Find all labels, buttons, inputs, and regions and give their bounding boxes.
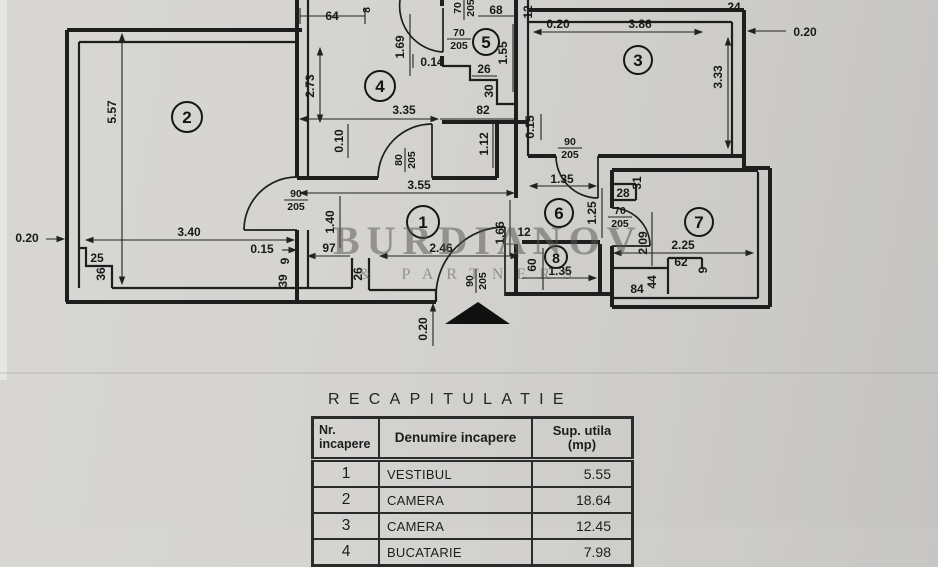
door-width: 90 <box>564 136 576 148</box>
dim-label: 0.14 <box>420 55 444 69</box>
dim-label: 0.15 <box>523 115 537 139</box>
dim-label: 1.40 <box>323 210 337 234</box>
dim-label: 2.09 <box>636 231 650 255</box>
dim-label: 26 <box>351 267 365 281</box>
dim-label: 82 <box>476 103 490 117</box>
dim-label: 44 <box>645 275 659 289</box>
door-size-label: 90 205 <box>558 136 582 161</box>
dim-label: 2.46 <box>429 241 453 255</box>
door-size-label: 70 205 <box>608 205 632 230</box>
dim-label: 0.20 <box>546 17 570 31</box>
door-height: 205 <box>406 151 418 169</box>
room-number: 3 <box>624 46 652 74</box>
dim-label: 0.10 <box>332 129 346 153</box>
room-number: 6 <box>545 199 573 227</box>
door-size-label: 90 205 <box>464 269 489 293</box>
entrance-arrow-icon <box>445 302 510 324</box>
room-number: 4 <box>365 71 395 101</box>
dim-label: 1.25 <box>585 201 599 225</box>
dim-label: 0.15 <box>250 242 274 256</box>
cell-name: CAMERA <box>379 513 532 539</box>
dim-label: 3.86 <box>628 17 652 31</box>
dim-label: 3.35 <box>392 103 416 117</box>
door-size-label: 70 205 <box>447 27 471 52</box>
door-width: 90 <box>290 188 302 200</box>
dim-label: 12 <box>521 5 535 19</box>
dim-label: 84 <box>630 282 644 296</box>
dim-label: 0.20 <box>416 317 430 341</box>
cell-nr: 1 <box>313 460 380 488</box>
outer-walls <box>66 0 770 307</box>
cell-nr: 3 <box>313 513 380 539</box>
dim-label: 28 <box>616 186 630 200</box>
dim-label: 31 <box>630 176 644 190</box>
dim-label: 2.25 <box>671 238 695 252</box>
header-line: Sup. utila <box>553 423 612 438</box>
table-row: 2 CAMERA 18.64 <box>313 487 633 513</box>
svg-text:4: 4 <box>375 77 385 96</box>
scanned-floor-plan-page: { "plan": { "rooms": ["1","2","3","4","5… <box>0 0 938 527</box>
svg-text:7: 7 <box>694 213 703 232</box>
header-row: Nr. incapere Denumire incapere Sup. util… <box>313 418 633 460</box>
dim-label: 24 <box>727 0 741 14</box>
dim-label: 0.20 <box>15 231 39 245</box>
dim-label: 39 <box>276 274 290 288</box>
cell-nr: 4 <box>313 539 380 566</box>
dimension-lines <box>46 8 786 346</box>
dim-label: 2.73 <box>303 74 317 98</box>
dim-label: 62 <box>674 255 688 269</box>
cell-name: CAMERA <box>379 487 532 513</box>
dim-label: 3.40 <box>177 225 201 239</box>
dim-label: 3.33 <box>711 65 725 89</box>
dim-label: 9 <box>278 257 292 264</box>
header-line: incapere <box>319 437 370 451</box>
dim-label: 1.69 <box>393 35 407 59</box>
dim-label: 30 <box>482 84 496 98</box>
room-number: 1 <box>407 206 439 238</box>
door-width: 90 <box>464 275 476 287</box>
col-header-sup-utila: Sup. utila (mp) <box>532 418 633 460</box>
table-row: 4 BUCATARIE 7.98 <box>313 539 633 566</box>
inner-walls <box>79 0 758 302</box>
dim-label: 0.20 <box>793 25 817 39</box>
door-size-label: 80 205 <box>393 148 418 172</box>
dim-label: 60 <box>525 258 539 272</box>
header-line: (mp) <box>568 437 596 452</box>
dim-label: 8 <box>361 7 373 13</box>
cell-area: 7.98 <box>532 539 633 566</box>
cell-area: 5.55 <box>532 460 633 488</box>
recapitulation-section: RECAPITULATIE Nr. incapere Denumire inca… <box>311 391 634 567</box>
cell-name: VESTIBUL <box>379 460 532 488</box>
door-size-label: 70 205 <box>452 0 477 20</box>
door-height: 205 <box>287 201 305 213</box>
dim-label: 36 <box>94 267 108 281</box>
svg-text:6: 6 <box>554 204 563 223</box>
door-height: 205 <box>450 40 468 52</box>
dim-label: 1.35 <box>550 172 574 186</box>
table-row: 1 VESTIBUL 5.55 <box>313 460 633 488</box>
dim-label: 5.57 <box>105 100 119 124</box>
door-width: 70 <box>614 205 626 217</box>
room-number: 2 <box>172 102 202 132</box>
col-header-denumire: Denumire incapere <box>379 418 532 460</box>
cell-name: BUCATARIE <box>379 539 532 566</box>
door-height: 205 <box>611 218 629 230</box>
door-height: 205 <box>465 0 477 17</box>
door-width: 70 <box>453 27 465 39</box>
dim-label: 3.55 <box>407 178 431 192</box>
header-line: Nr. <box>319 423 336 437</box>
dim-label: 1.66 <box>493 221 507 245</box>
door-size-label: 90 205 <box>284 188 308 213</box>
cell-area: 18.64 <box>532 487 633 513</box>
floor-plan-drawing: 5.57 0.20 3.40 0.15 25 36 9 39 64 8 2.73… <box>0 0 938 390</box>
svg-text:3: 3 <box>633 51 642 70</box>
svg-text:2: 2 <box>182 108 191 127</box>
door-height: 205 <box>561 149 579 161</box>
dim-label: 9 <box>696 266 710 273</box>
door-width: 80 <box>393 154 405 166</box>
room-number: 8 <box>545 246 567 268</box>
svg-text:8: 8 <box>552 250 560 266</box>
dim-label: 12 <box>517 225 531 239</box>
dim-label: 64 <box>325 9 339 23</box>
cell-area: 12.45 <box>532 513 633 539</box>
door-height: 205 <box>477 272 489 290</box>
dim-label: 97 <box>322 241 336 255</box>
dim-label: 1.12 <box>477 132 491 156</box>
cell-nr: 2 <box>313 487 380 513</box>
svg-text:1: 1 <box>418 213 427 232</box>
recap-table: Nr. incapere Denumire incapere Sup. util… <box>311 416 634 567</box>
svg-text:5: 5 <box>481 33 490 52</box>
table-row: 3 CAMERA 12.45 <box>313 513 633 539</box>
col-header-nr: Nr. incapere <box>313 418 380 460</box>
door-width: 70 <box>452 2 464 14</box>
dim-label: 26 <box>477 62 491 76</box>
recap-title: RECAPITULATIE <box>328 391 634 409</box>
room-number: 7 <box>685 208 713 236</box>
dim-label: 25 <box>90 251 104 265</box>
dim-label: 68 <box>489 3 503 17</box>
